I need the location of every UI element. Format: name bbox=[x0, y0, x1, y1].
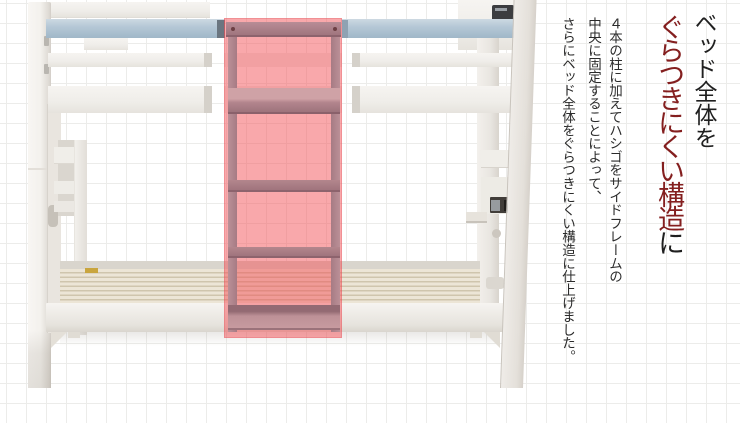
headboard-round-hole bbox=[492, 229, 501, 238]
outlet-shelf bbox=[466, 212, 487, 223]
bunk-bed-product-image bbox=[0, 0, 740, 423]
guard-rail-right-cap bbox=[352, 53, 360, 67]
ladder-rail-right bbox=[331, 22, 340, 332]
headline-tail: に bbox=[654, 229, 684, 253]
label-sticker bbox=[85, 268, 98, 273]
description-line-2: 中央に固定することによって、 bbox=[583, 17, 603, 203]
upper-frame-rail-left-cap bbox=[204, 86, 212, 113]
top-frame-bar-left bbox=[50, 2, 210, 18]
left-post-leg-shade bbox=[28, 330, 51, 388]
headline-line-2: ぐらつきにくい構造に bbox=[650, 13, 689, 253]
ladder-rail-left bbox=[228, 22, 237, 332]
ladder-rung bbox=[228, 247, 340, 258]
top-rail-blue-right bbox=[342, 19, 517, 38]
guard-rail-left-cap bbox=[204, 53, 212, 67]
headline-line-1: ベッド全体を bbox=[686, 11, 720, 149]
corner-hardware-highlight bbox=[495, 8, 507, 11]
upper-frame-rail-right bbox=[352, 86, 517, 113]
upper-frame-rail-right-cap bbox=[352, 86, 360, 113]
left-leg-tab bbox=[68, 332, 80, 338]
description-line-3: さらにベッド全体をぐらつきにくい構造に仕上げました。 bbox=[557, 17, 577, 363]
ladder-step-upper bbox=[228, 88, 340, 114]
headboard-notch bbox=[486, 277, 504, 289]
headline-emphasis-red: ぐらつきにくい構造 bbox=[654, 13, 684, 229]
top-rail-end-cap-right bbox=[342, 20, 348, 38]
right-leg-tab bbox=[470, 332, 482, 338]
description-line-1: ４本の柱に加えてハシゴをサイドフレームの bbox=[604, 17, 624, 283]
top-rail-blue-left bbox=[46, 19, 225, 38]
power-outlet-plug bbox=[491, 200, 500, 211]
guard-rail-right bbox=[352, 53, 517, 67]
ladder-screw-icon bbox=[231, 27, 235, 31]
ladder-highlight-overlay bbox=[224, 18, 342, 338]
bracket-under-rail bbox=[84, 38, 128, 50]
upper-frame-rail-left bbox=[48, 86, 212, 113]
guard-rail-left bbox=[48, 53, 212, 67]
ladder-step-bottom bbox=[228, 305, 340, 330]
ladder-screw-icon bbox=[333, 27, 337, 31]
ladder-rung bbox=[228, 180, 340, 192]
ladder-top-cap bbox=[226, 22, 341, 37]
